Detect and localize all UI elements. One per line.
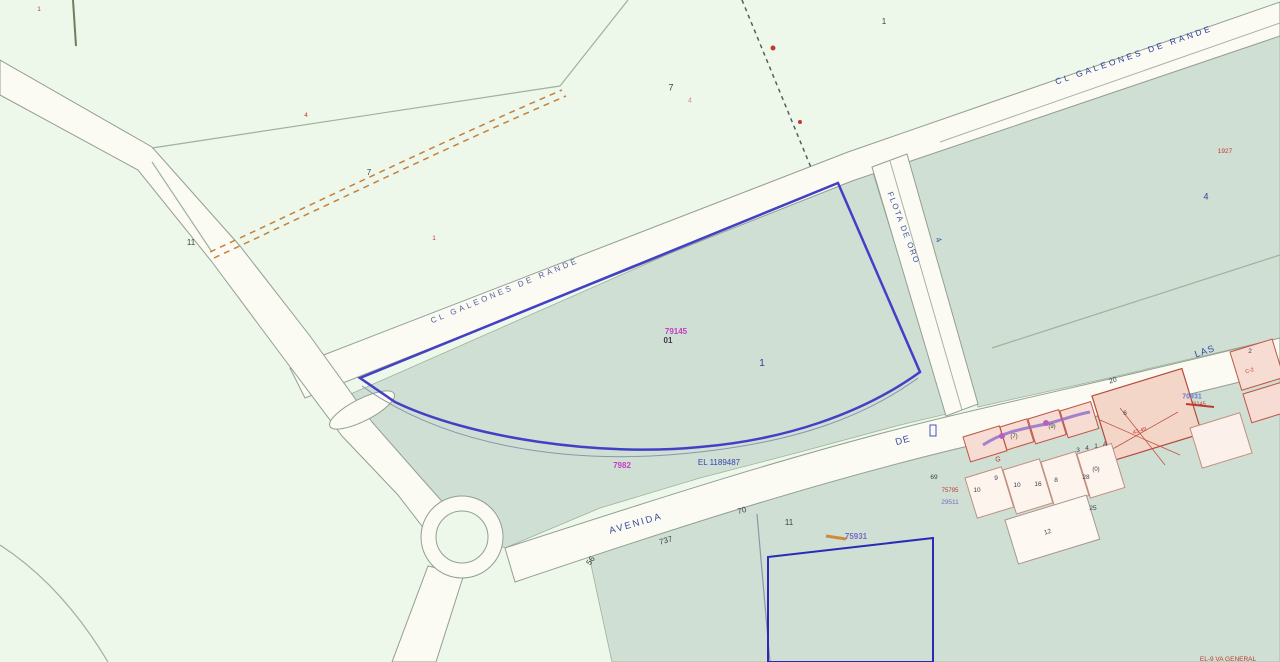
red-boundary-dot: [798, 120, 802, 124]
map-canvas: [0, 0, 1280, 662]
roundabout-inner-island: [436, 511, 488, 563]
roundabout: [421, 496, 503, 578]
cadastral-map[interactable]: CL GALEONES DE RANDECL GALEONES DE RANDE…: [0, 0, 1280, 662]
magenta-blob: [1043, 420, 1049, 426]
red-boundary-dot: [771, 46, 776, 51]
magenta-blob: [999, 433, 1005, 439]
